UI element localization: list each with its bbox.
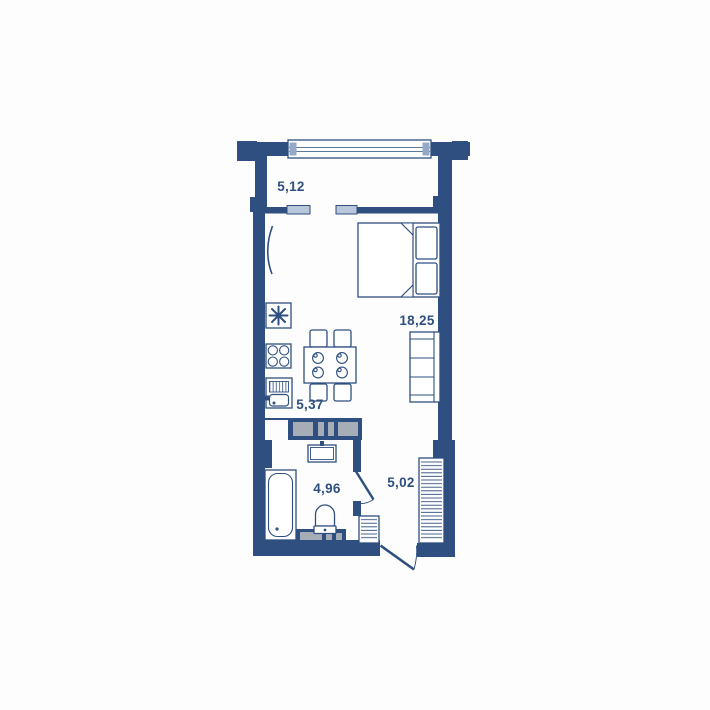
chair [310,330,327,347]
wall-balcony-right [438,155,452,196]
window-end-cap [423,143,430,156]
shaft-panel [318,422,324,436]
bed [358,223,440,297]
toilet-bowl [316,505,335,526]
vanity-panel [336,533,342,540]
sink-drainboard [270,382,289,393]
sofa-outline [410,332,440,402]
shaft-panel [293,422,313,436]
floor-plan: 5,12 18,25 5,37 4,96 5,02 [0,0,710,710]
bathroom-door-leaf [356,472,374,500]
wall-bath-pilaster [265,440,272,468]
chair [334,384,351,401]
sink-basin [270,395,289,407]
balcony-window-top [288,140,431,158]
wall-balcony-partition-left [265,207,289,214]
partition-window [287,206,310,215]
shaft-panel [328,422,334,436]
wall-bath-right-top [353,440,361,472]
wall-top-right-wing [452,141,468,160]
windows [287,140,431,214]
shaft-panel [338,422,358,436]
living-room-area-label: 18,25 [399,313,434,328]
entrance-door-arc [414,546,417,570]
washbasin [308,441,336,462]
dining-table [304,347,356,383]
wall-bottom-right [417,543,455,557]
wall-balcony-left [255,155,267,198]
bathtub-inner [269,474,293,537]
bathroom-area-label: 4,96 [313,481,341,496]
balcony-door-swing [268,226,273,274]
dining-set [304,330,356,401]
kitchen-area-label: 5,37 [296,397,323,412]
window-end-cap [290,143,297,156]
toilet [314,505,336,534]
partition-window [336,206,357,215]
wall-balcony-left-block [250,197,267,212]
floor-plan-canvas: 5,12 18,25 5,37 4,96 5,02 [0,0,710,710]
wall-balcony-partition-right [356,207,439,214]
kitchen-fixtures [265,303,293,408]
chair [334,330,351,347]
bathtub-drain [275,527,278,530]
kitchen-sink [265,378,293,408]
vent-star-icon [270,307,288,325]
wall-top-left [239,142,290,156]
balcony-area-label: 5,12 [277,179,304,194]
sink-drain [273,402,276,405]
sink-tap [265,396,270,401]
furniture [265,223,445,570]
entrance-door-leaf [381,546,415,570]
wall-hall-right [443,456,455,557]
wall-left [253,211,265,556]
pillow [416,227,437,259]
washing-machine-hatch [361,519,377,541]
hallway-area-label: 5,02 [387,475,414,490]
wall-hall-right-block [433,440,455,458]
wardrobe-hatch [421,461,442,541]
pillow [416,263,437,294]
toilet-flush [324,529,327,532]
washbasin-tap [320,441,324,446]
wall-kitchen-thin [265,418,288,420]
sofa [410,332,440,402]
